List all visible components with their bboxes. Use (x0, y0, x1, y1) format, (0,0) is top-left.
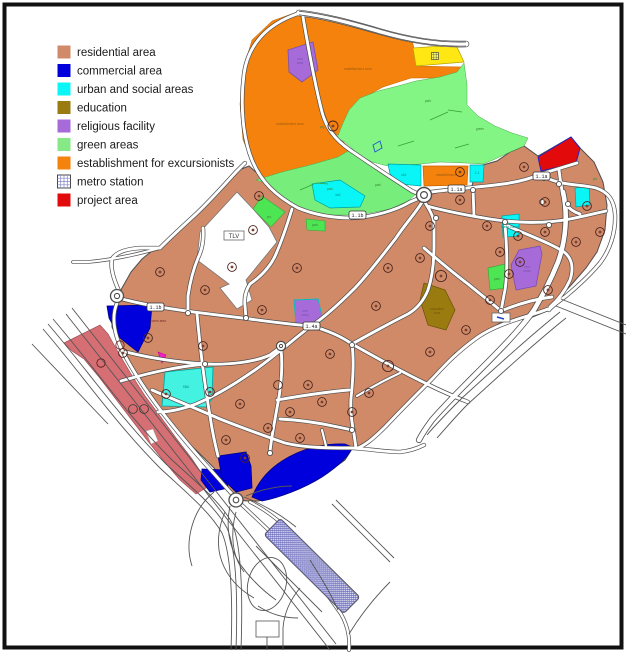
svg-text:park: park (375, 183, 382, 187)
svg-text:establishment: establishment (436, 173, 456, 177)
svg-text:1.1a: 1.1a (450, 187, 462, 193)
svg-text:establishment zone: establishment zone (276, 122, 304, 126)
svg-text:sb1: sb1 (401, 173, 406, 177)
svg-text:park: park (425, 99, 432, 103)
svg-text:park: park (494, 277, 501, 281)
svg-text:prk: prk (593, 177, 598, 181)
svg-text:mosq: mosq (523, 269, 531, 273)
svg-text:1.1b: 1.1b (351, 213, 363, 219)
svg-text:comm area: comm area (150, 319, 166, 323)
svg-text:project area: project area (77, 195, 138, 207)
svg-text:SBA: SBA (183, 385, 190, 389)
svg-text:1.1b: 1.1b (149, 305, 161, 311)
svg-text:prk: prk (267, 215, 272, 219)
svg-text:residential area: residential area (77, 47, 156, 59)
svg-text:prg: prg (320, 125, 325, 129)
svg-text:sb2: sb2 (335, 193, 340, 197)
svg-text:establishment for excursionist: establishment for excursionists (77, 158, 234, 170)
svg-text:TLV: TLV (229, 234, 240, 240)
svg-text:1.1: 1.1 (475, 171, 480, 175)
svg-text:establishment zone: establishment zone (344, 67, 372, 71)
svg-text:green areas: green areas (77, 140, 139, 152)
svg-text:park: park (312, 223, 319, 227)
svg-text:commercial area: commercial area (77, 66, 163, 78)
svg-text:1.1a: 1.1a (535, 174, 547, 180)
svg-text:education: education (77, 103, 127, 115)
svg-text:park: park (327, 187, 334, 191)
svg-text:urban and social areas: urban and social areas (77, 84, 194, 96)
svg-text:zone: zone (434, 311, 441, 315)
svg-text:metro comm: metro comm (501, 225, 519, 229)
svg-text:1.4a: 1.4a (305, 324, 317, 330)
svg-text:mosq: mosq (301, 313, 309, 317)
svg-text:area: area (297, 61, 304, 65)
svg-text:green: green (476, 127, 484, 131)
svg-text:religious facility: religious facility (77, 121, 155, 133)
svg-text:metro station: metro station (77, 177, 143, 189)
